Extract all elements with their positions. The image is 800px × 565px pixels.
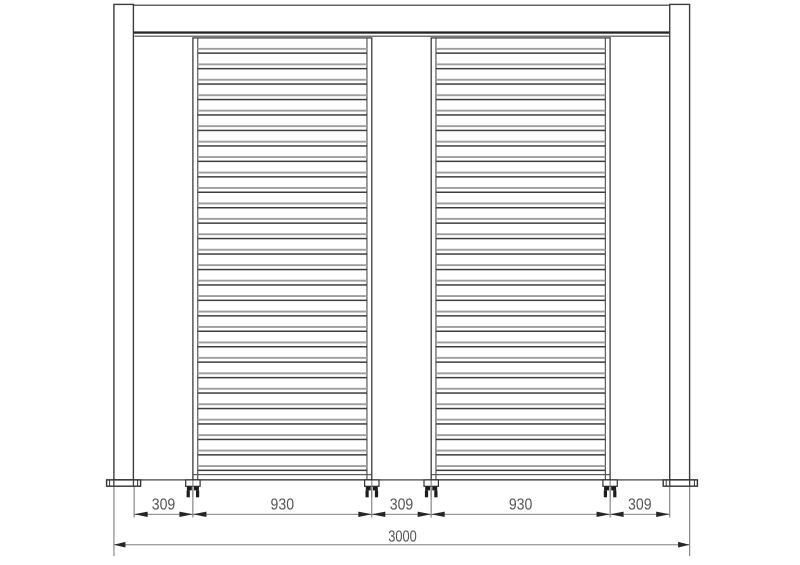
svg-text:309: 309 bbox=[152, 497, 176, 514]
svg-text:309: 309 bbox=[390, 497, 414, 514]
svg-text:930: 930 bbox=[271, 497, 295, 514]
svg-text:930: 930 bbox=[509, 497, 533, 514]
svg-text:3000: 3000 bbox=[388, 529, 417, 546]
svg-text:309: 309 bbox=[628, 497, 652, 514]
